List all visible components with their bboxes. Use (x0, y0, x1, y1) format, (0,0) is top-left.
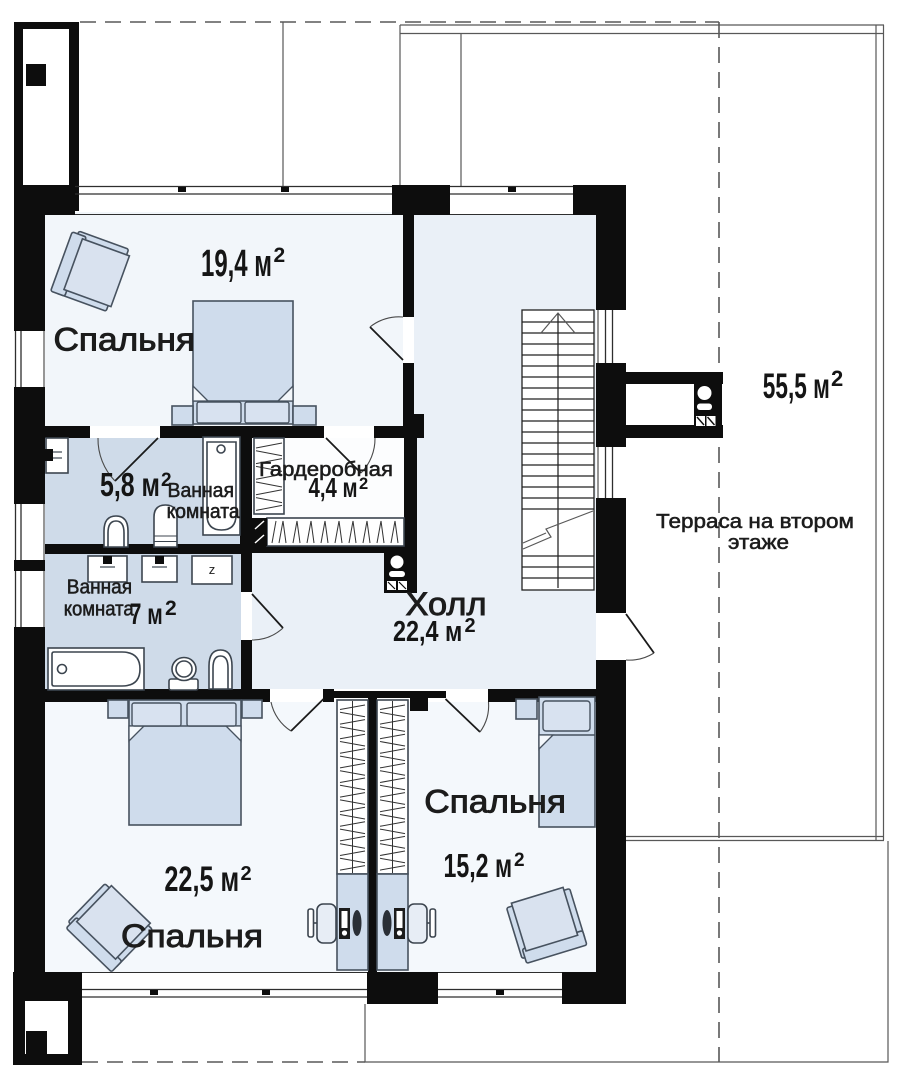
svg-text:комната: комната (167, 501, 241, 523)
svg-text:этаже: этаже (728, 532, 789, 554)
svg-text:22,4 м: 22,4 м (393, 616, 462, 648)
svg-text:2: 2 (465, 615, 476, 637)
svg-text:Ванная: Ванная (67, 577, 132, 599)
svg-text:15,2 м: 15,2 м (444, 847, 513, 884)
svg-text:Спальня: Спальня (54, 322, 196, 358)
svg-text:2: 2 (274, 244, 286, 267)
svg-text:Спальня: Спальня (424, 783, 566, 819)
svg-text:19,4 м: 19,4 м (201, 243, 272, 285)
svg-text:2: 2 (241, 863, 252, 885)
svg-text:22,5 м: 22,5 м (164, 860, 239, 899)
svg-text:5,8 м: 5,8 м (100, 466, 160, 503)
svg-text:Ванная: Ванная (168, 480, 235, 502)
svg-text:Спальня: Спальня (121, 918, 263, 954)
svg-text:2: 2 (831, 366, 843, 391)
svg-text:комната: комната (64, 599, 135, 621)
svg-text:Терраса на втором: Терраса на втором (656, 511, 854, 533)
svg-text:2: 2 (165, 597, 177, 620)
svg-text:2: 2 (514, 850, 525, 871)
svg-text:7 м: 7 м (130, 598, 163, 631)
svg-text:55,5 м: 55,5 м (763, 367, 830, 406)
svg-text:2: 2 (359, 475, 368, 493)
svg-text:z: z (209, 562, 216, 577)
svg-text:4,4 м: 4,4 м (309, 472, 358, 503)
